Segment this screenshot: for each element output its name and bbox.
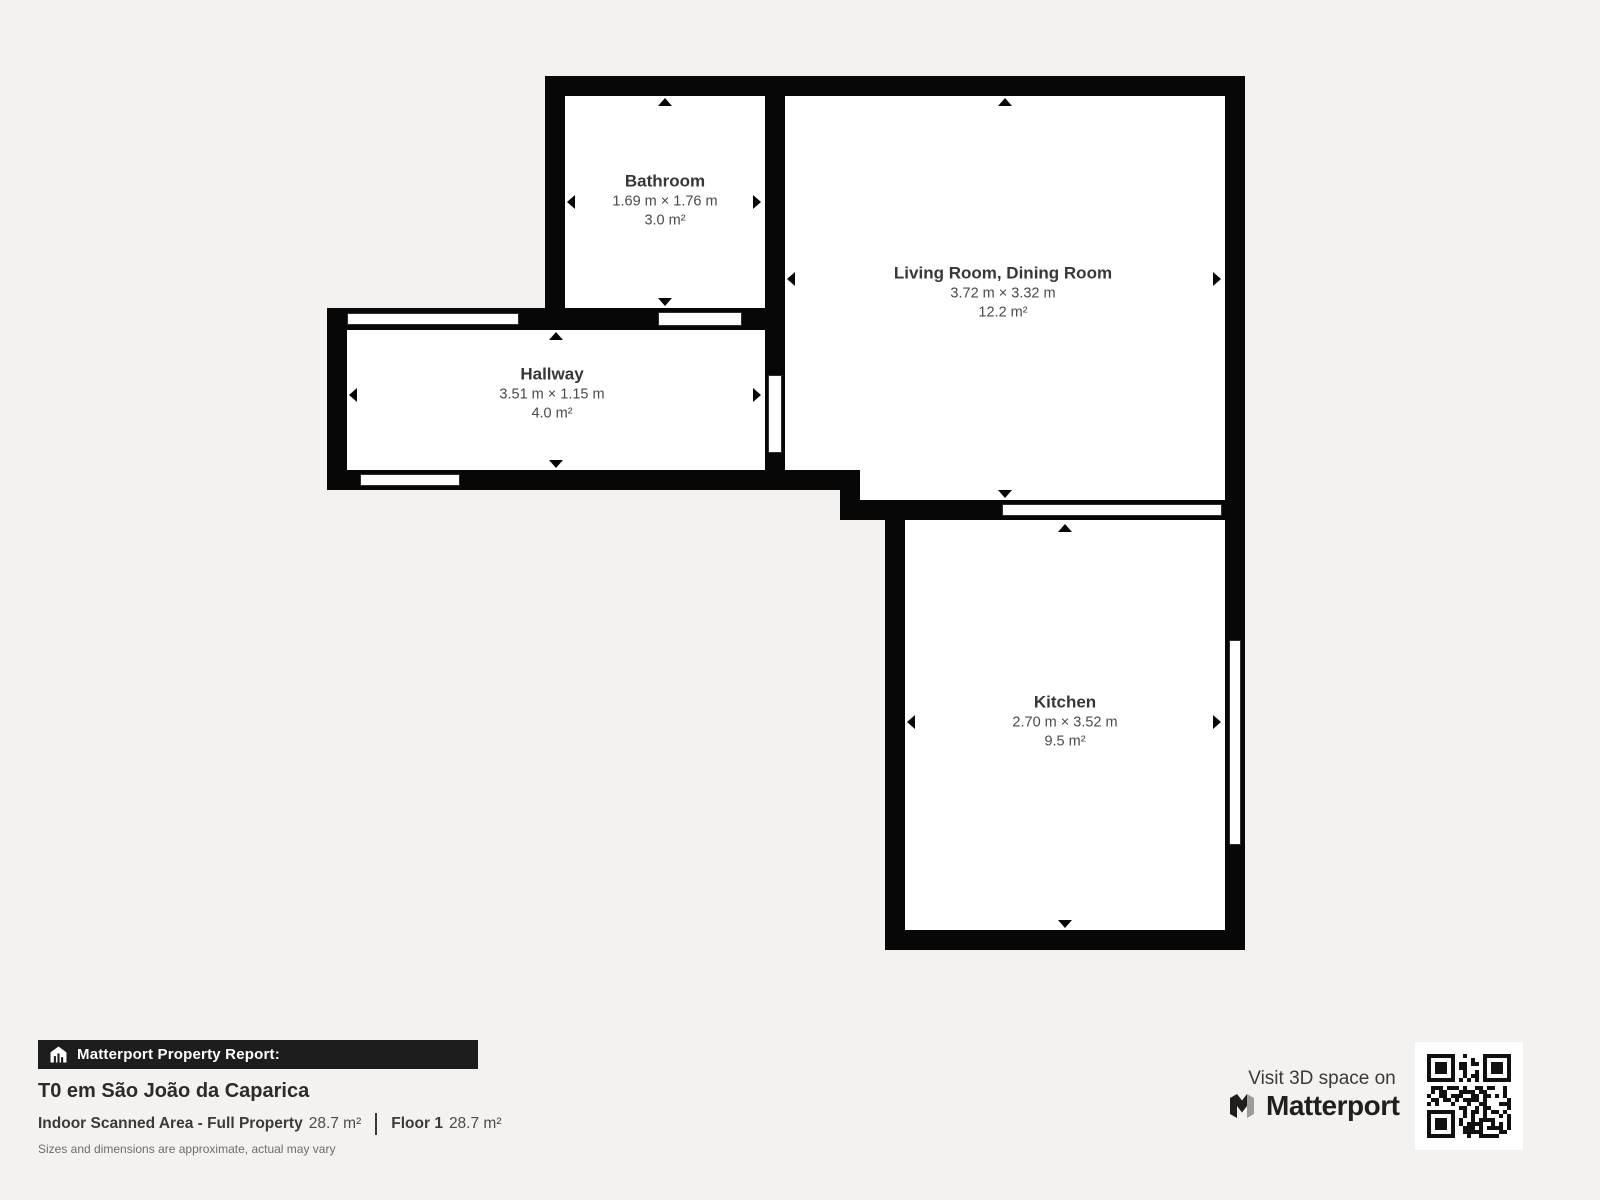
wall-kitchen-left — [885, 520, 905, 950]
dimension-arrow-left — [907, 715, 915, 729]
dimension-arrow-up — [549, 332, 563, 340]
dimension-arrow-right — [753, 195, 761, 209]
wall-top — [545, 76, 1245, 96]
room-name: Bathroom — [612, 172, 717, 192]
matterport-mark-icon — [1226, 1090, 1258, 1122]
hallway-living-door-opening — [768, 375, 782, 453]
dimension-arrow-down — [1058, 920, 1072, 928]
room-living-room-lower — [860, 470, 1225, 500]
room-name: Living Room, Dining Room — [894, 264, 1112, 284]
house-icon — [50, 1046, 67, 1063]
room-area: 4.0 m² — [499, 405, 604, 424]
room-area: 9.5 m² — [1012, 733, 1117, 752]
wall-kitchen-bottom — [885, 930, 1245, 950]
qr-code — [1415, 1042, 1523, 1150]
dimension-arrow-right — [753, 388, 761, 402]
room-dimensions: 3.51 m × 1.15 m — [499, 386, 604, 405]
floor-label: Floor 1 — [391, 1115, 443, 1133]
kitchen-right-window-opening — [1229, 640, 1241, 845]
property-title: T0 em São João da Caparica — [38, 1080, 309, 1103]
dimension-arrow-down — [998, 490, 1012, 498]
room-area: 3.0 m² — [612, 212, 717, 231]
scanned-area-value: 28.7 m² — [309, 1115, 362, 1133]
room-area: 12.2 m² — [894, 304, 1112, 323]
dimension-arrow-right — [1213, 272, 1221, 286]
room-dimensions: 2.70 m × 3.52 m — [1012, 714, 1117, 733]
wall-step — [840, 470, 860, 520]
room-label-living-room: Living Room, Dining Room 3.72 m × 3.32 m… — [894, 264, 1112, 323]
dimension-arrow-left — [349, 388, 357, 402]
wall-bathroom-right — [765, 96, 785, 330]
dimension-arrow-left — [787, 272, 795, 286]
divider — [375, 1113, 377, 1135]
report-info-line: Indoor Scanned Area - Full Property 28.7… — [38, 1113, 502, 1135]
matterport-logo: Matterport — [1226, 1090, 1399, 1122]
bathroom-door-opening — [658, 312, 742, 326]
visit-3d-space-text: Visit 3D space on — [1237, 1068, 1407, 1090]
room-label-kitchen: Kitchen 2.70 m × 3.52 m 9.5 m² — [1012, 693, 1117, 752]
dimension-arrow-up — [1058, 524, 1072, 532]
kitchen-living-opening — [1002, 504, 1222, 516]
hallway-bottom-window-opening — [360, 474, 460, 486]
hallway-top-window-opening — [347, 313, 519, 325]
report-badge-label: Matterport Property Report: — [77, 1046, 280, 1063]
disclaimer-text: Sizes and dimensions are approximate, ac… — [38, 1142, 335, 1156]
room-label-hallway: Hallway 3.51 m × 1.15 m 4.0 m² — [499, 365, 604, 424]
room-name: Hallway — [499, 365, 604, 385]
scanned-area-label: Indoor Scanned Area - Full Property — [38, 1115, 303, 1133]
dimension-arrow-down — [549, 460, 563, 468]
dimension-arrow-up — [658, 98, 672, 106]
floor-value: 28.7 m² — [449, 1115, 502, 1133]
room-label-bathroom: Bathroom 1.69 m × 1.76 m 3.0 m² — [612, 172, 717, 231]
dimension-arrow-left — [567, 195, 575, 209]
room-dimensions: 3.72 m × 3.32 m — [894, 285, 1112, 304]
room-name: Kitchen — [1012, 693, 1117, 713]
room-dimensions: 1.69 m × 1.76 m — [612, 193, 717, 212]
wall-hallway-left — [327, 308, 347, 490]
floorplan-report-page: Bathroom 1.69 m × 1.76 m 3.0 m² Living R… — [0, 0, 1600, 1200]
matterport-wordmark: Matterport — [1266, 1090, 1399, 1122]
dimension-arrow-right — [1213, 715, 1221, 729]
wall-bathroom-left — [545, 76, 565, 330]
report-header-bar: Matterport Property Report: — [38, 1040, 478, 1069]
dimension-arrow-down — [658, 298, 672, 306]
dimension-arrow-up — [998, 98, 1012, 106]
